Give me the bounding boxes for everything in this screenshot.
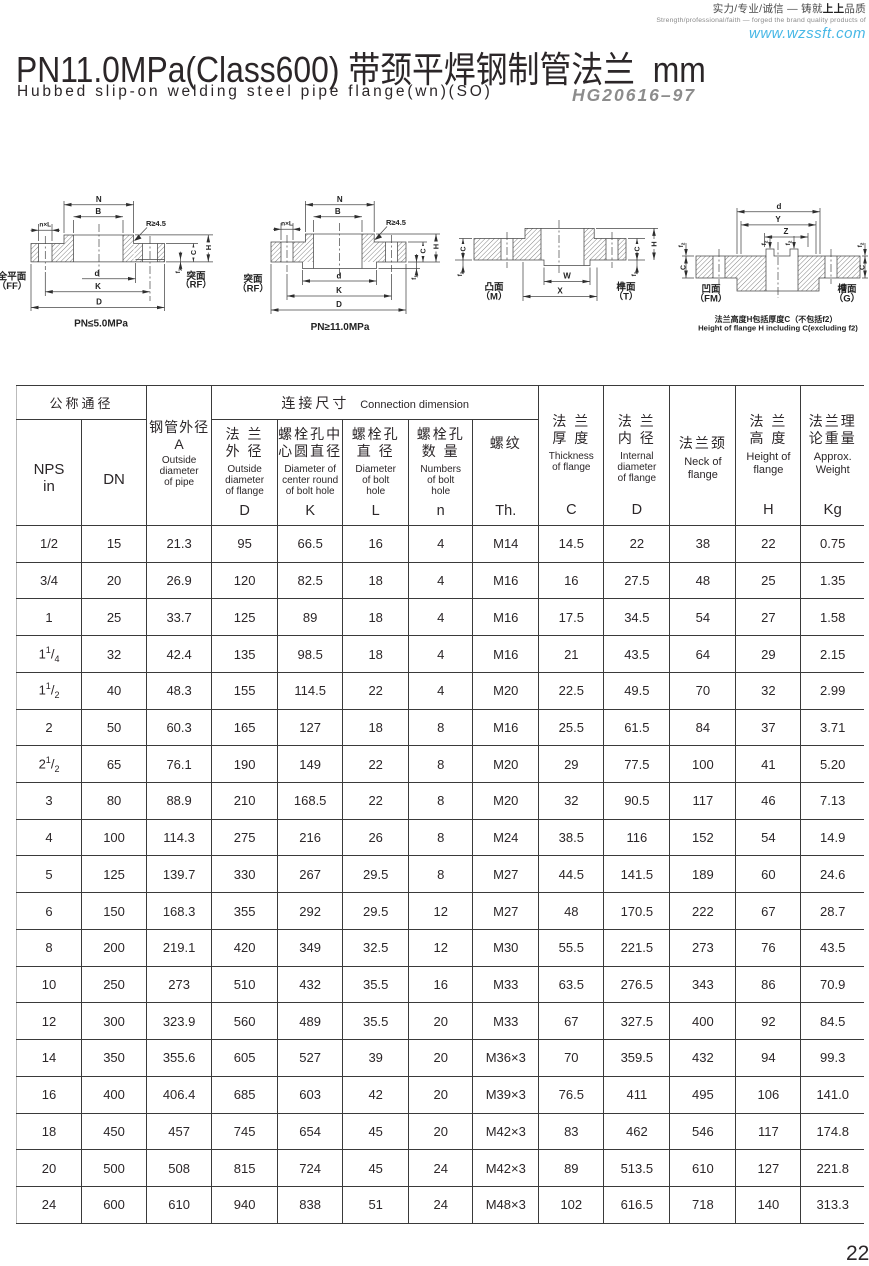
svg-text:H: H: [432, 244, 441, 249]
svg-text:X: X: [557, 287, 563, 296]
svg-text:d: d: [337, 272, 342, 281]
svg-text:（FM）: （FM）: [695, 293, 728, 305]
svg-text:f2: f2: [857, 242, 865, 247]
svg-text:H: H: [650, 241, 659, 246]
svg-text:（RF）: （RF）: [180, 279, 212, 291]
svg-text:W: W: [563, 272, 571, 281]
svg-text:n×L: n×L: [39, 222, 51, 229]
svg-text:（T）: （T）: [614, 291, 639, 303]
svg-text:C: C: [421, 248, 428, 253]
svg-text:N: N: [96, 195, 102, 204]
svg-text:d: d: [95, 269, 100, 278]
svg-text:（FF）: （FF）: [0, 280, 27, 292]
svg-text:C: C: [635, 246, 642, 251]
svg-text:PN≤5.0MPa: PN≤5.0MPa: [74, 319, 128, 330]
svg-text:H: H: [204, 245, 213, 250]
svg-text:B: B: [335, 207, 341, 216]
svg-text:C: C: [860, 265, 867, 270]
svg-text:D: D: [96, 298, 102, 307]
svg-text:N: N: [337, 195, 343, 204]
svg-text:（M）: （M）: [481, 291, 508, 303]
svg-text:f2: f2: [785, 240, 793, 245]
svg-text:PN≥11.0MPa: PN≥11.0MPa: [311, 322, 370, 333]
svg-text:f2: f2: [761, 240, 769, 245]
svg-text:（RF）: （RF）: [237, 283, 269, 295]
svg-text:n×L: n×L: [281, 221, 293, 228]
svg-text:D: D: [336, 300, 342, 309]
svg-text:Z: Z: [784, 227, 789, 236]
svg-text:法兰高度H包括厚度C（不包括f2）: 法兰高度H包括厚度C（不包括f2）: [715, 314, 838, 324]
svg-text:f2: f2: [631, 271, 639, 276]
svg-text:C: C: [461, 246, 468, 251]
svg-text:B: B: [95, 207, 101, 216]
svg-text:d: d: [777, 202, 782, 211]
svg-text:f2: f2: [457, 271, 465, 276]
svg-text:R≥4.5: R≥4.5: [386, 218, 406, 227]
svg-text:（G）: （G）: [834, 293, 860, 305]
svg-text:f1: f1: [411, 275, 419, 280]
svg-text:C: C: [191, 250, 198, 255]
svg-text:C: C: [681, 265, 688, 270]
svg-text:f1: f1: [175, 268, 183, 273]
svg-text:f2: f2: [678, 242, 686, 247]
svg-text:K: K: [336, 286, 342, 295]
svg-text:Y: Y: [775, 215, 781, 224]
svg-text:K: K: [95, 282, 101, 291]
svg-text:Height of flange H including C: Height of flange H including C(excluding…: [698, 324, 858, 333]
svg-text:R≥4.5: R≥4.5: [146, 219, 166, 228]
